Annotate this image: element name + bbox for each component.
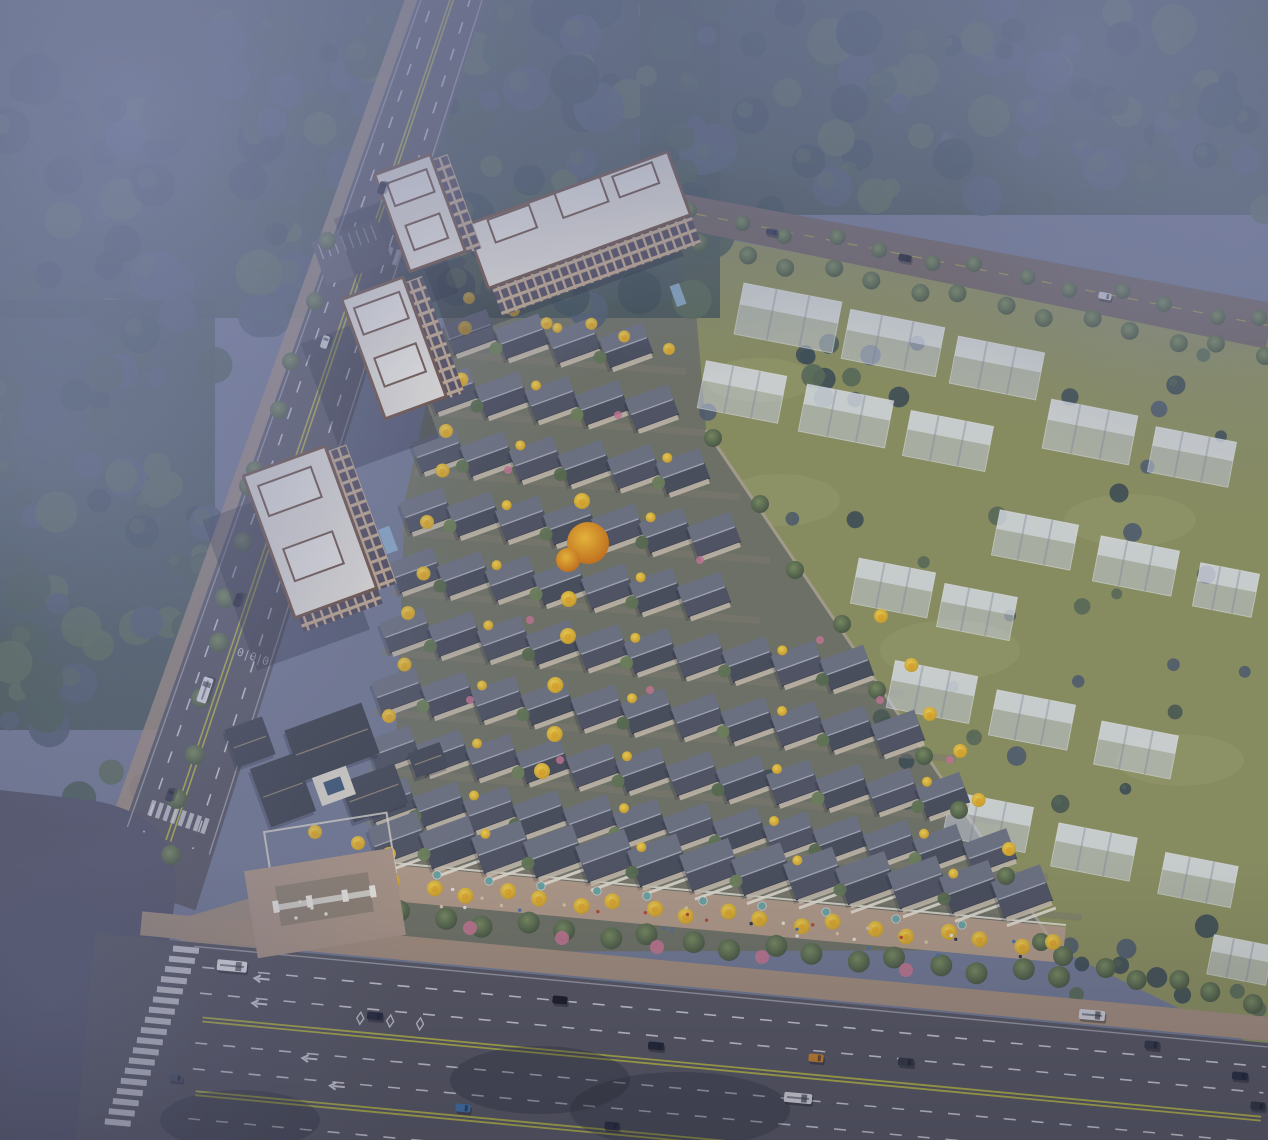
layer-atmosphere — [0, 0, 1268, 1140]
bottom-vignette — [0, 860, 1268, 1140]
aerial-site-rendering: 0|0|0 — [0, 0, 1268, 1140]
render-canvas: 0|0|0 — [0, 0, 1268, 1140]
